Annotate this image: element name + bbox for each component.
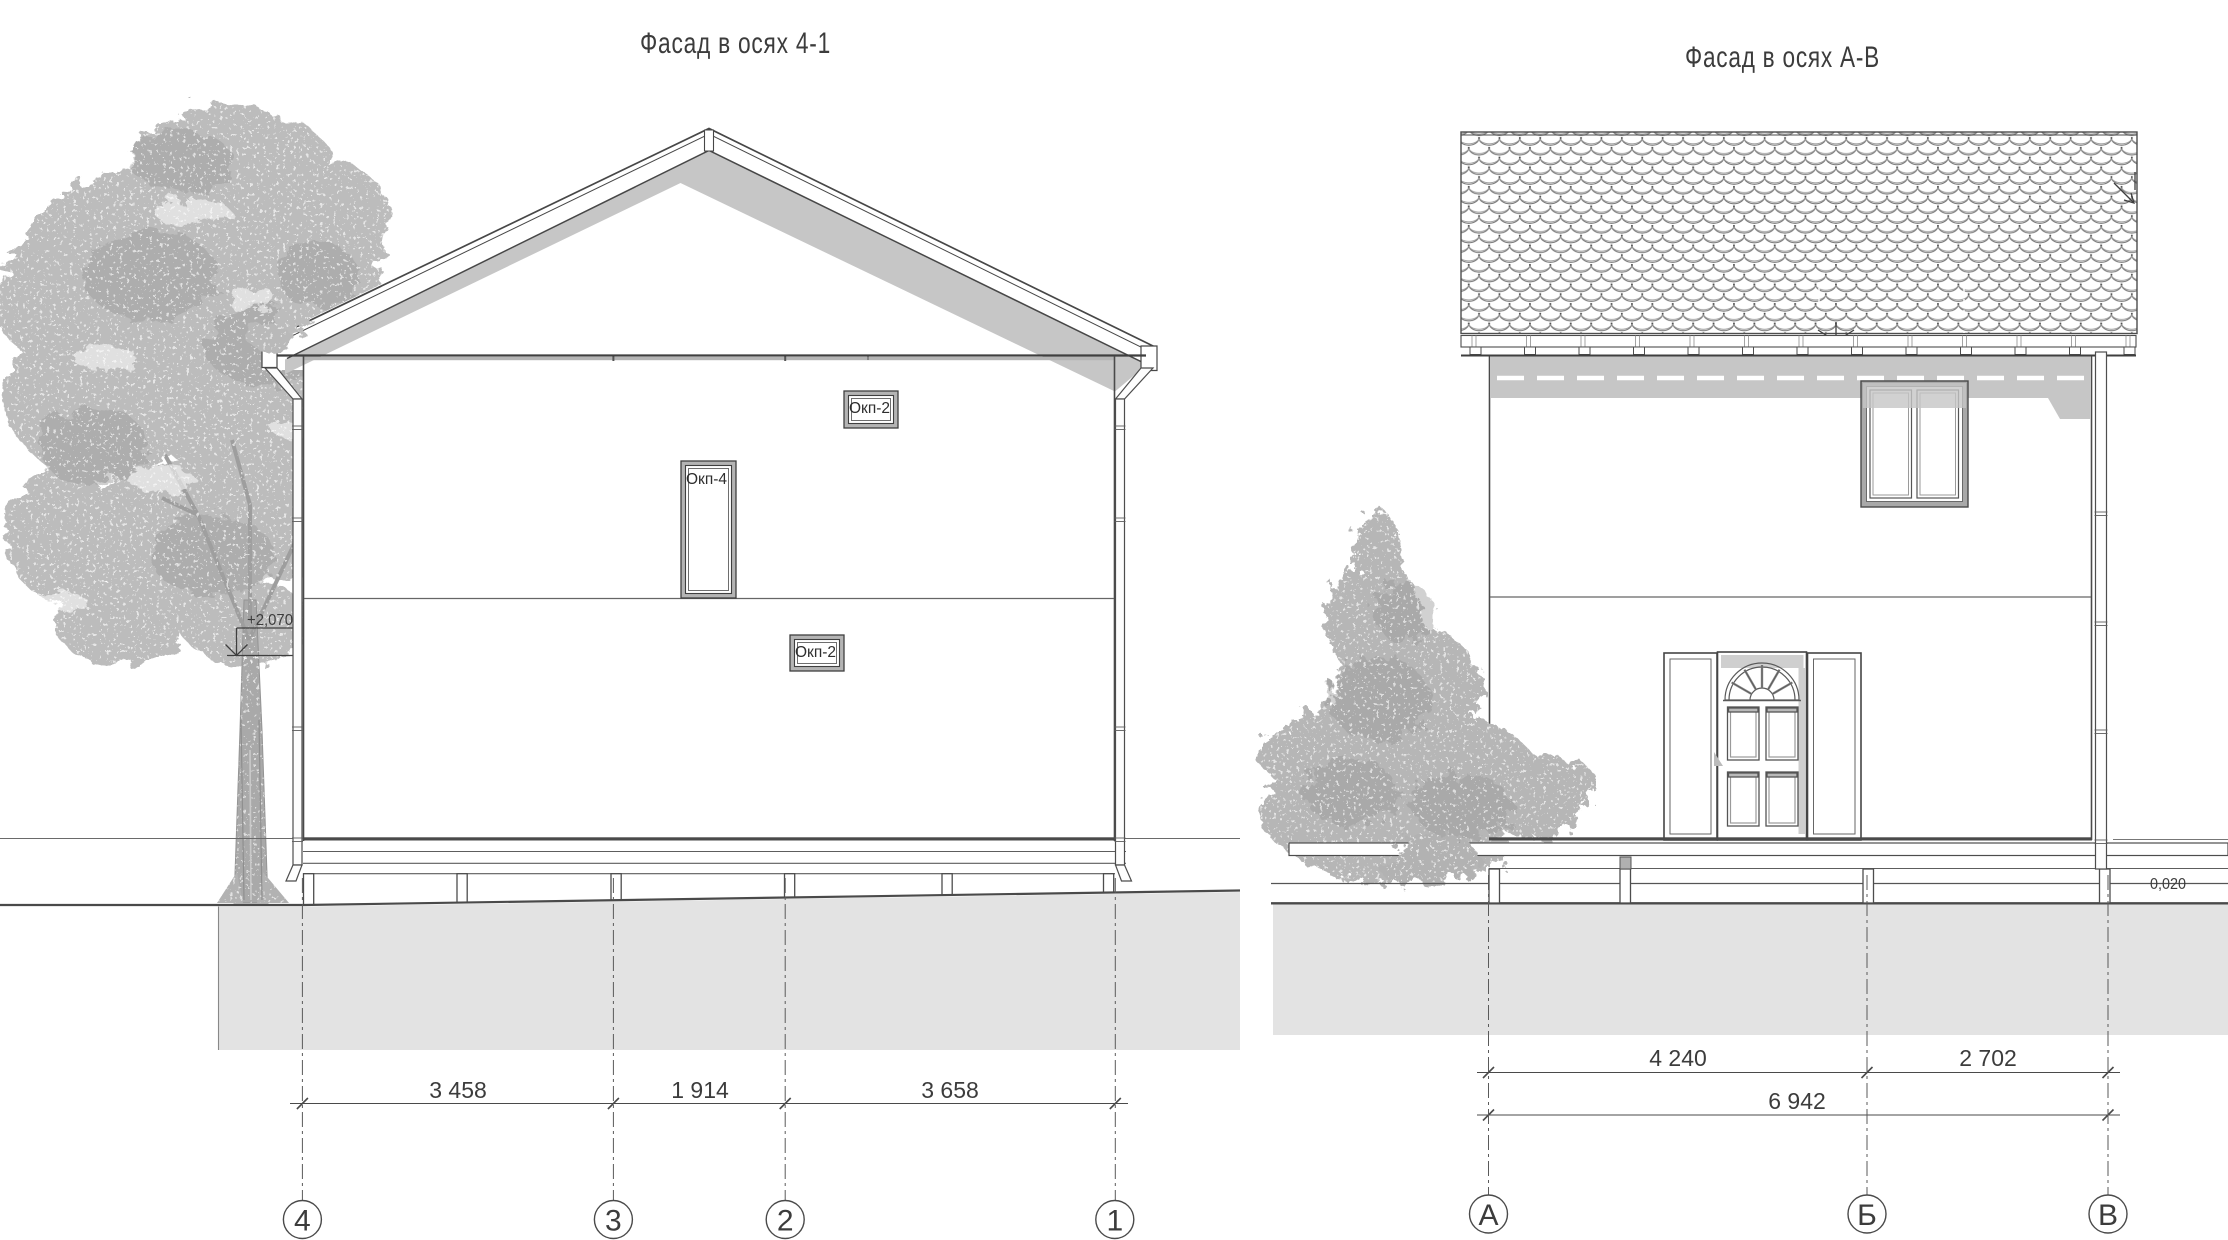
svg-text:3 458: 3 458	[429, 1077, 487, 1103]
svg-text:Б: Б	[1857, 1199, 1877, 1232]
svg-text:Окп-2: Окп-2	[849, 400, 890, 417]
svg-text:3: 3	[605, 1205, 622, 1238]
svg-text:В: В	[2098, 1199, 2118, 1232]
svg-text:Фасад в осях 4-1: Фасад в осях 4-1	[640, 27, 831, 60]
svg-text:+2,070: +2,070	[247, 612, 293, 629]
svg-text:Окп-4: Окп-4	[686, 471, 727, 488]
svg-text:Фасад в осях А-В: Фасад в осях А-В	[1685, 41, 1880, 74]
svg-text:2: 2	[777, 1205, 794, 1238]
svg-text:6 942: 6 942	[1768, 1088, 1826, 1114]
svg-text:4: 4	[294, 1205, 311, 1238]
svg-text:А: А	[1478, 1199, 1498, 1232]
svg-text:3 658: 3 658	[921, 1077, 979, 1103]
svg-text:4 240: 4 240	[1649, 1045, 1707, 1071]
svg-text:0,020: 0,020	[2150, 876, 2186, 893]
svg-text:1 914: 1 914	[671, 1077, 729, 1103]
svg-text:1: 1	[1106, 1205, 1123, 1238]
svg-text:Окп-2: Окп-2	[795, 644, 836, 661]
svg-text:2 702: 2 702	[1959, 1045, 2017, 1071]
